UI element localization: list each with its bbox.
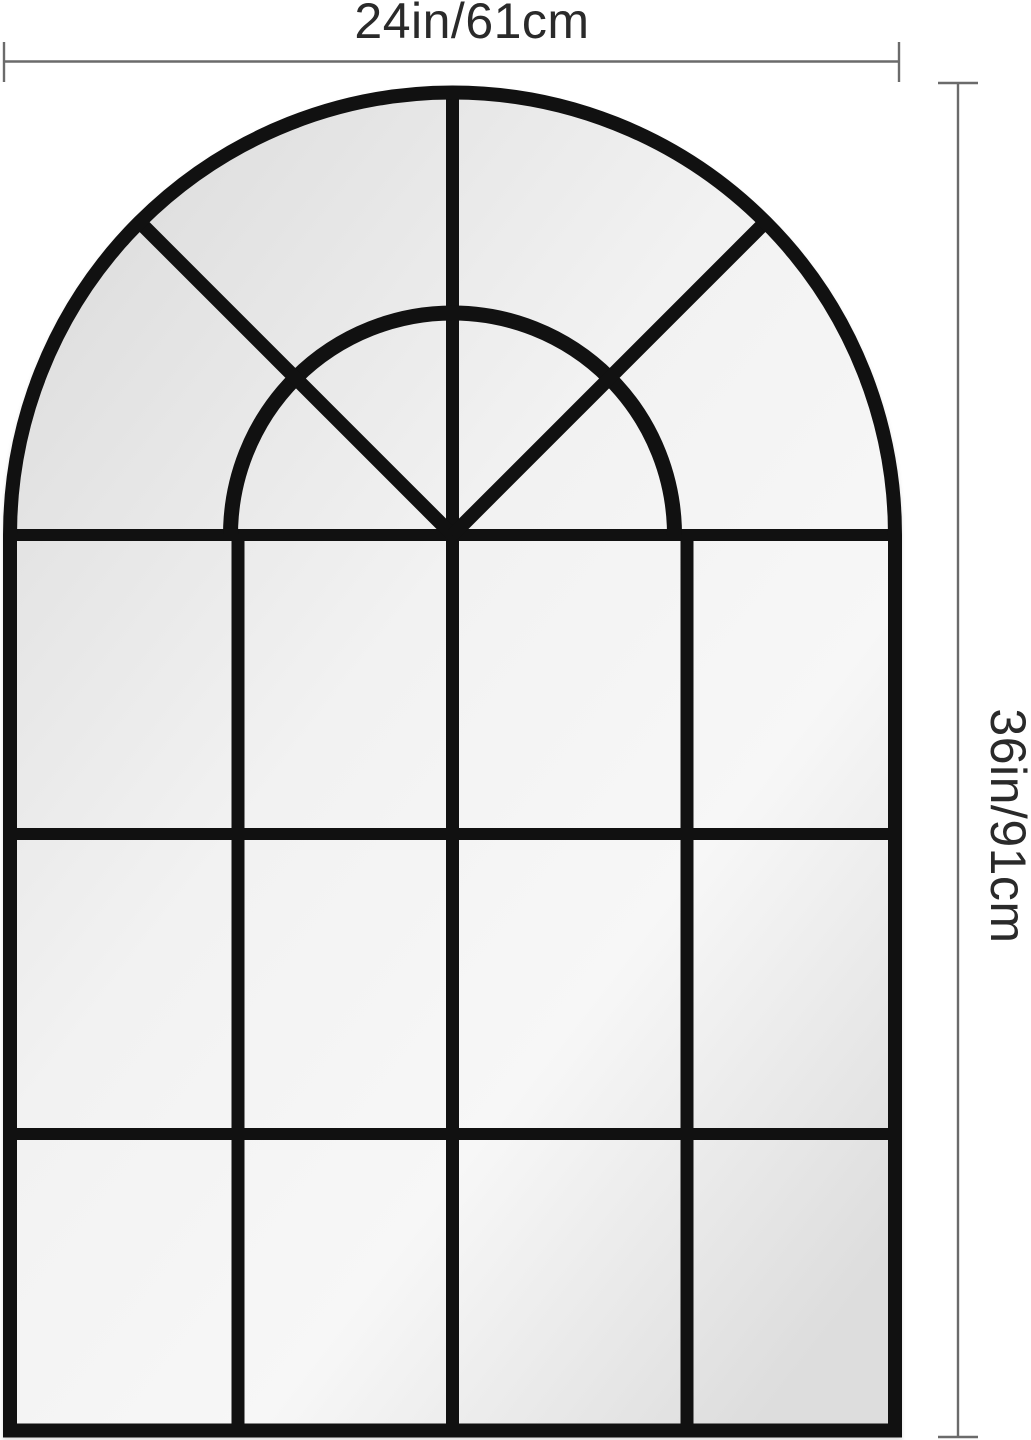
- height-dimension: [938, 83, 978, 1437]
- product-dimension-diagram: 24in/61cm 36in/91cm: [0, 0, 1031, 1440]
- height-label: 36in/91cm: [981, 708, 1031, 943]
- width-label: 24in/61cm: [354, 0, 589, 48]
- diagram-svg: [0, 0, 1031, 1440]
- mirror: [10, 90, 895, 1431]
